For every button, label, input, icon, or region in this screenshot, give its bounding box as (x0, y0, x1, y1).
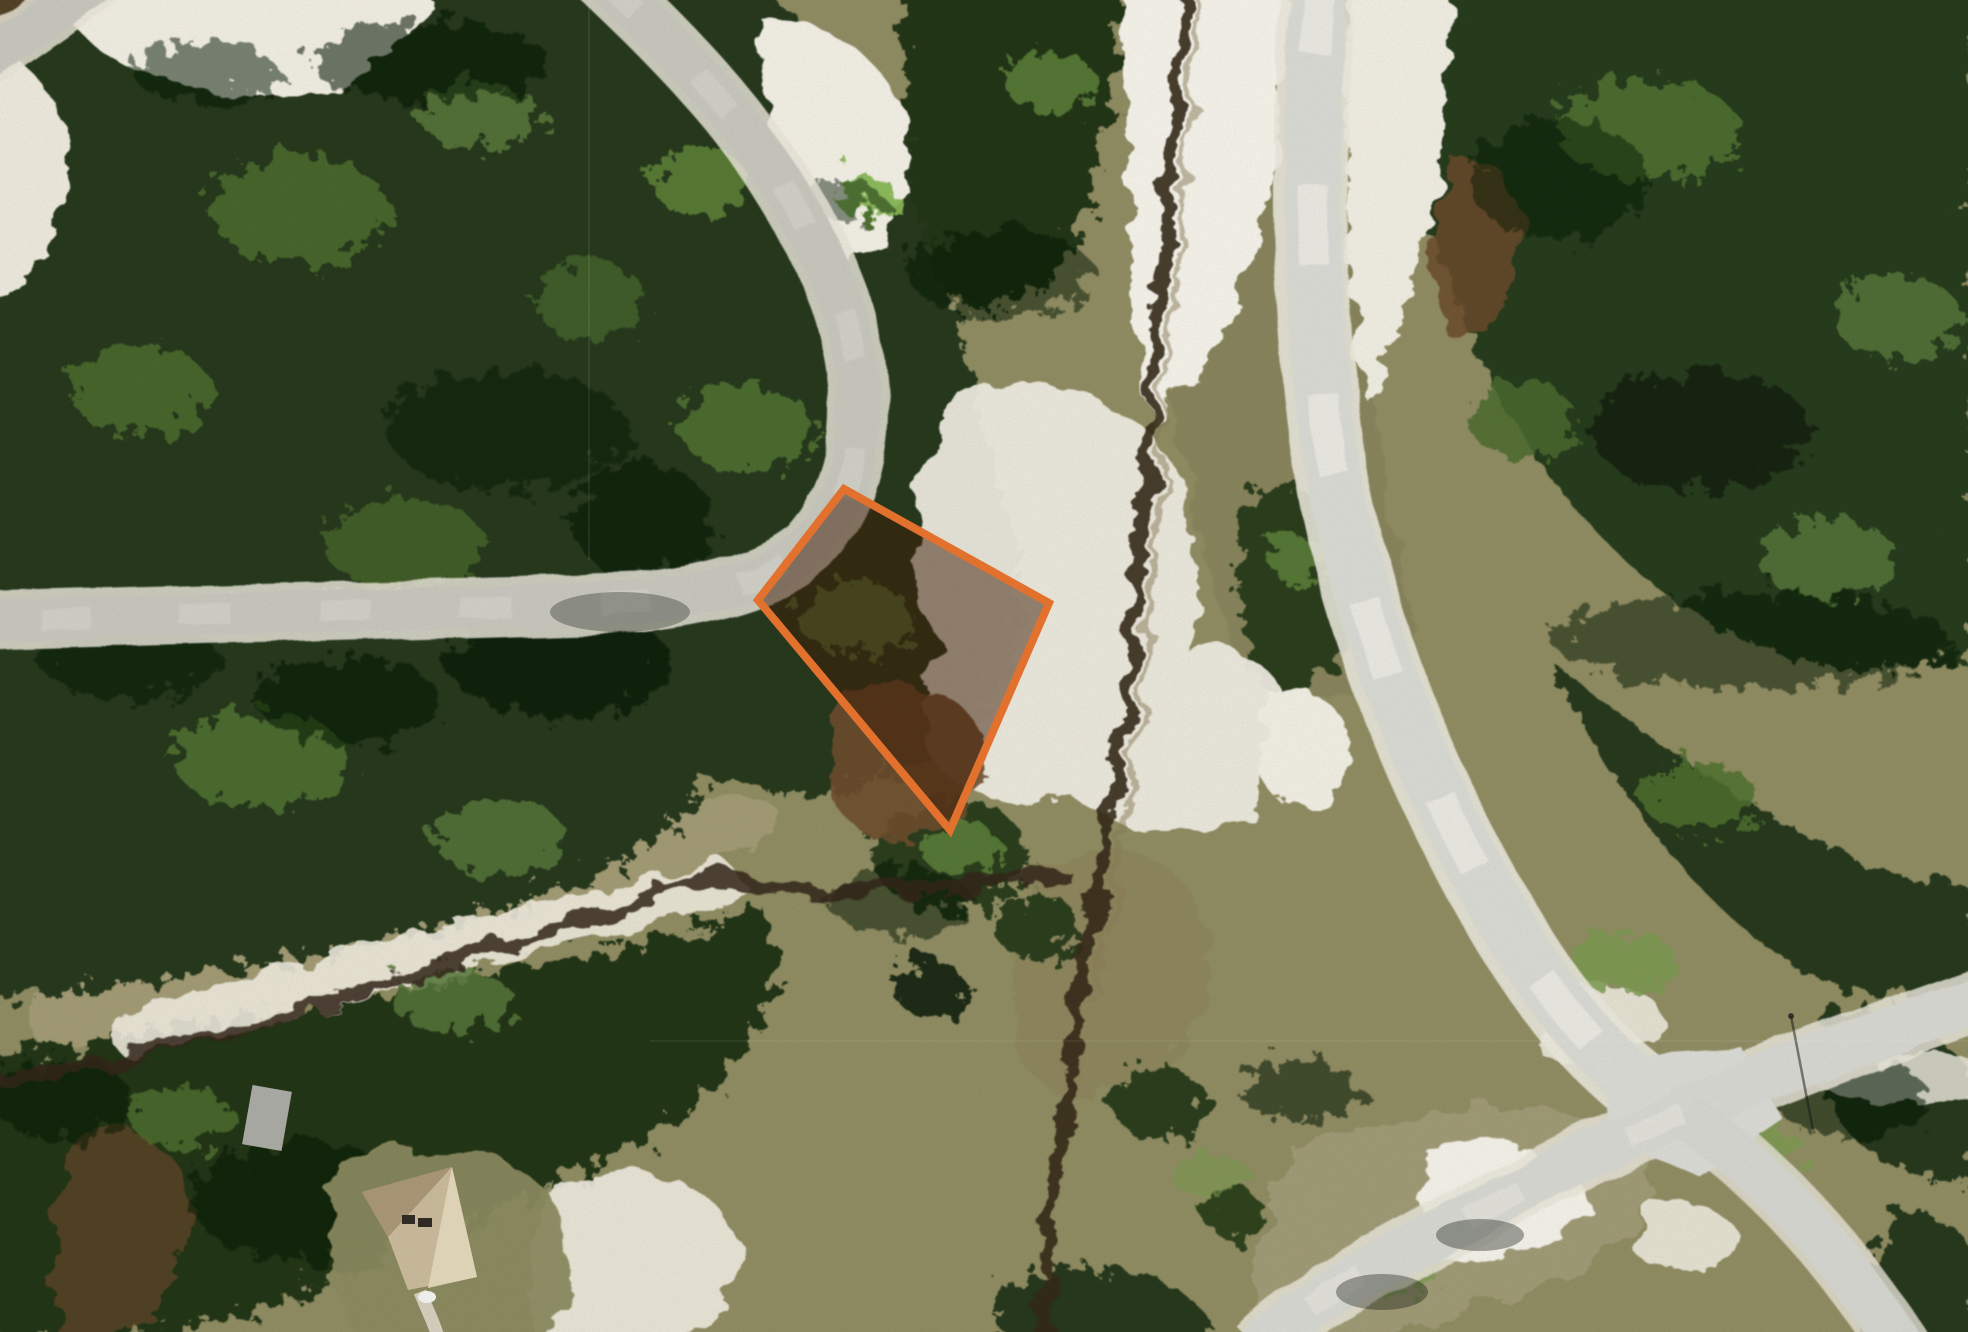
aerial-parcel-map (0, 0, 1968, 1332)
aerial-photo-stage (0, 0, 1968, 1332)
map-layers-root (0, 0, 1968, 1332)
